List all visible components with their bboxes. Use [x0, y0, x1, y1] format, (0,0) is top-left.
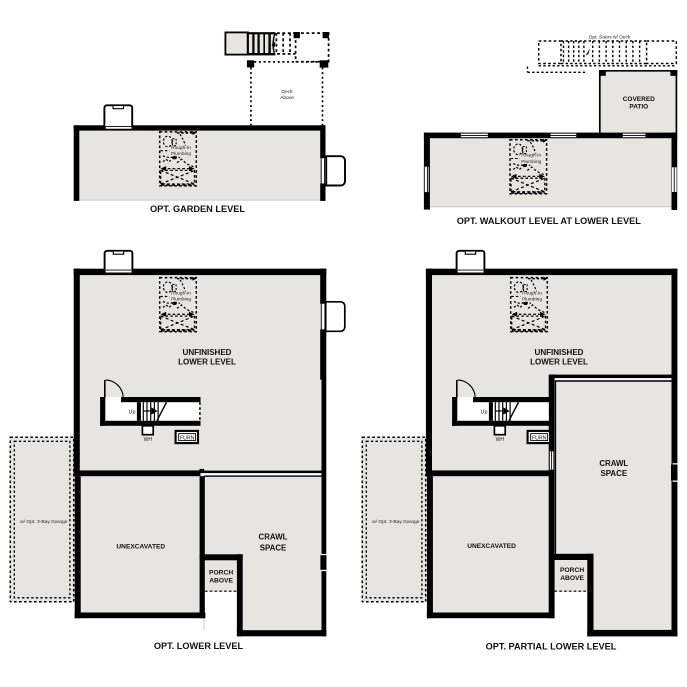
svg-text:WH: WH [496, 437, 505, 443]
svg-text:UNFINISHED: UNFINISHED [183, 348, 232, 357]
svg-text:OPT. WALKOUT LEVEL AT LOWER LE: OPT. WALKOUT LEVEL AT LOWER LEVEL [457, 216, 641, 226]
svg-text:CRAWL: CRAWL [259, 532, 288, 541]
svg-text:LOWER LEVEL: LOWER LEVEL [530, 357, 588, 366]
svg-text:SPACE: SPACE [600, 469, 627, 478]
svg-text:Deck: Deck [281, 89, 293, 95]
svg-text:FURN: FURN [180, 436, 195, 442]
svg-text:LOWER LEVEL: LOWER LEVEL [178, 357, 236, 366]
svg-text:SPACE: SPACE [260, 544, 287, 553]
svg-text:ABOVE: ABOVE [560, 575, 584, 582]
svg-text:WH: WH [144, 437, 153, 443]
svg-text:PATIO: PATIO [629, 104, 648, 111]
svg-text:w/ Opt. 3-Bay Garage: w/ Opt. 3-Bay Garage [372, 519, 420, 525]
svg-text:CRAWL: CRAWL [599, 459, 628, 468]
svg-text:COVERED: COVERED [623, 96, 655, 103]
svg-text:PORCH: PORCH [209, 570, 233, 577]
svg-text:FURN: FURN [532, 436, 547, 442]
svg-text:UNEXCAVATED: UNEXCAVATED [116, 544, 165, 551]
svg-text:Up: Up [481, 409, 488, 415]
svg-text:ABOVE: ABOVE [209, 578, 233, 585]
svg-text:Opt. Stairs w/ Deck: Opt. Stairs w/ Deck [589, 35, 631, 41]
svg-text:OPT. PARTIAL LOWER LEVEL: OPT. PARTIAL LOWER LEVEL [486, 641, 617, 651]
svg-text:OPT. GARDEN LEVEL: OPT. GARDEN LEVEL [150, 204, 245, 214]
svg-text:Above: Above [280, 95, 294, 101]
svg-text:OPT. LOWER LEVEL: OPT. LOWER LEVEL [154, 641, 244, 651]
svg-text:PORCH: PORCH [560, 567, 584, 574]
svg-text:Up: Up [129, 409, 136, 415]
svg-text:UNEXCAVATED: UNEXCAVATED [467, 543, 516, 550]
svg-text:UNFINISHED: UNFINISHED [535, 348, 584, 357]
svg-text:w/ Opt. 3-Bay Garage: w/ Opt. 3-Bay Garage [20, 519, 68, 525]
